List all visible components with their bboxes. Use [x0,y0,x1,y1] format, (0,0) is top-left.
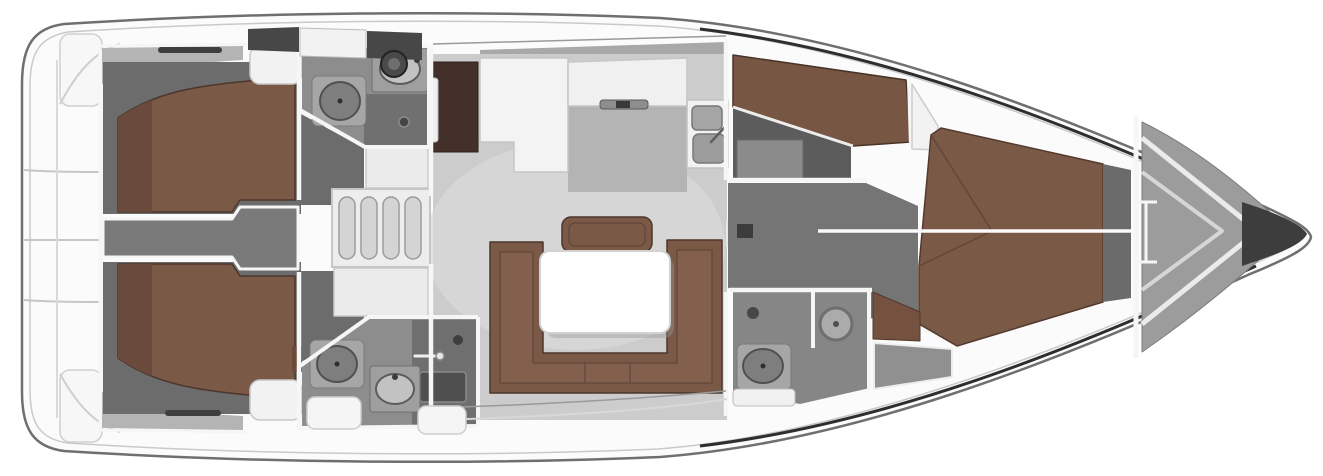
aft-head-port-shower [364,94,428,146]
companionway-step-4 [405,197,421,259]
shower-handle-knob-starboard [436,352,444,360]
aft-bed-starboard-locker [250,380,302,420]
shower-head-starboard [453,335,463,345]
cabinet-port-mid [366,148,428,188]
wall-fwd-berth-end [909,80,911,146]
traveler-track-starboard [165,410,221,416]
shower-drain-port [399,117,409,127]
toilet-starboard-flush [335,362,340,367]
companionway-step-1 [339,197,355,259]
fwd-corridor-knob [737,224,753,238]
salon-bench-seat [562,217,652,252]
deck-box-starboard-2 [418,406,466,434]
cabinet-starboard-mid [334,268,428,316]
companionway-step-2 [361,197,377,259]
galley-counter [568,58,687,106]
galley-sink-basin-small [692,106,722,130]
cabin-trunk-edge-port [100,44,247,46]
aft-cabin-port-bed-pillow [118,100,152,212]
fwd-bed-headboard [1103,164,1131,302]
toilet-fwd-flush [761,364,766,369]
aft-head-starboard-shower-tray [420,372,466,402]
companionway-hatch-light [300,28,366,58]
companionway-step-3 [383,197,399,259]
salon-table [540,251,670,333]
deck-box-starboard-1 [307,397,361,429]
winch-center [388,58,400,70]
traveler-track-port [158,47,222,53]
galley-stove-handle [616,101,630,108]
galley-floor [568,106,687,192]
cabin-trunk-edge-starboard [100,430,247,432]
galley-sink-basin-large [693,134,725,163]
floor-plan-svg [0,0,1323,476]
wardrobe-aft [432,62,478,152]
companionway-hatch-dark-left [248,27,299,52]
fwd-head-step [733,389,795,406]
aft-cabin-starboard-bed-pillow [118,264,152,376]
fwd-head-floor-drain [747,307,759,319]
toilet-port-flush [338,99,343,104]
fwd-head-sink-drain [833,321,839,327]
yacht-floor-plan [0,0,1323,476]
fwd-closet-panel [737,140,803,178]
sink-starboard-faucet [392,374,398,380]
